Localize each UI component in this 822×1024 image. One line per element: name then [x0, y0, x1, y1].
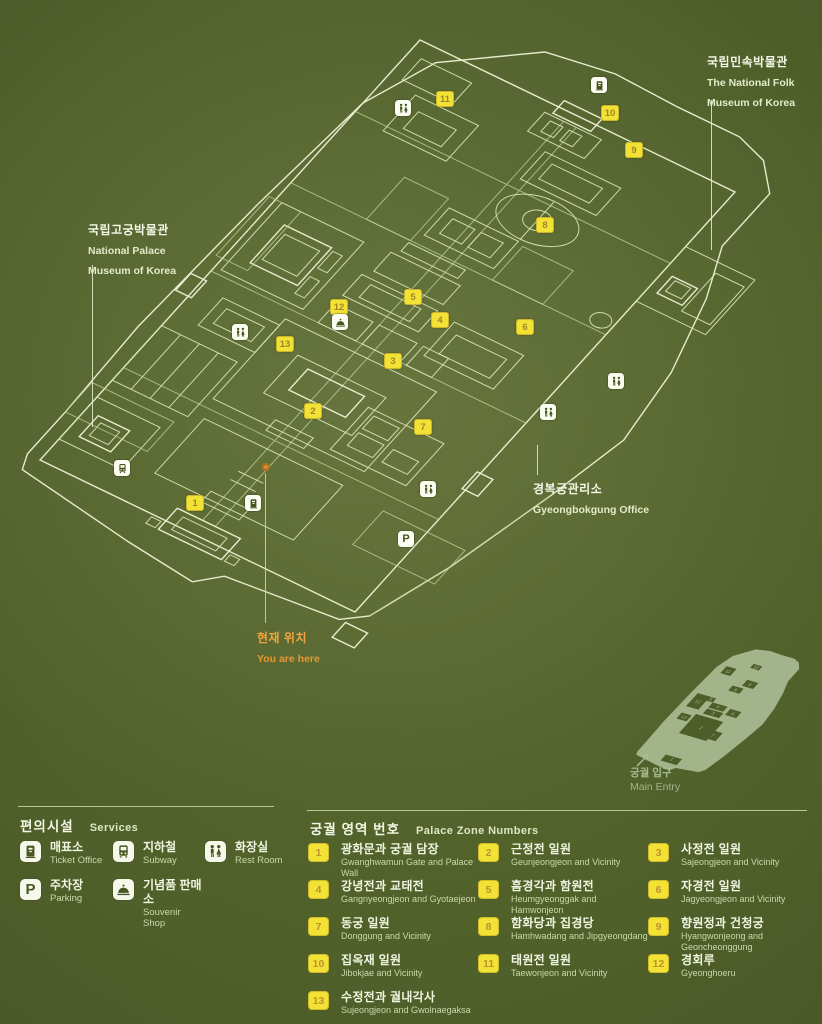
zone-label-ko: 집옥재 일원 — [341, 954, 422, 968]
restroom-icon — [423, 484, 434, 495]
map-marker-zone-1: 1 — [186, 495, 204, 511]
map-marker-number: 11 — [440, 94, 450, 105]
zone-item-10: 10집옥재 일원Jibokjae and Vicinity — [308, 954, 478, 991]
zone-label-ko: 경회루 — [681, 954, 736, 968]
zone-item-12: 12경회루Gyeonghoeru — [648, 954, 822, 991]
ticket-icon — [594, 80, 605, 91]
service-label-en: Subway — [143, 855, 177, 867]
service-item-ticket-office: 매표소Ticket Office — [20, 841, 113, 879]
folk-museum-leader-line — [711, 100, 712, 250]
zones-divider — [307, 810, 807, 811]
zone-item-4: 4강녕전과 교태전Gangnyeongjeon and Gyotaejeon — [308, 880, 478, 917]
restroom-icon — [611, 376, 622, 387]
zone-label-ko: 동궁 일원 — [341, 917, 431, 931]
restroom-icon — [235, 327, 246, 338]
map-marker-zone-4: 4 — [431, 312, 449, 328]
map-marker-zone-3: 3 — [384, 353, 402, 369]
zone-number-badge: 1 — [308, 843, 329, 862]
palace-museum-label-en2: Museum of Korea — [88, 265, 176, 277]
zone-label-ko: 강녕전과 교태전 — [341, 880, 476, 894]
folk-museum-label-en2: Museum of Korea — [707, 97, 795, 109]
zone-label-ko: 향원정과 건청궁 — [681, 917, 822, 931]
zone-label-ko: 태원전 일원 — [511, 954, 607, 968]
map-marker-zone-12: 12 — [330, 299, 348, 315]
zone-label-en: Jagyeongjeon and Vicinity — [681, 894, 785, 906]
zones-header: 궁궐 영역 번호 Palace Zone Numbers — [310, 818, 539, 838]
services-title-ko: 편의시설 — [20, 815, 74, 835]
zone-label-ko: 함화당과 집경당 — [511, 917, 648, 931]
zones-title-en: Palace Zone Numbers — [416, 825, 539, 837]
you-are-here-label-en: You are here — [257, 653, 320, 665]
map-marker-number: 13 — [280, 339, 291, 350]
zone-item-11: 11태원전 일원Taewonjeon and Vicinity — [478, 954, 648, 991]
zone-number-badge: 3 — [648, 843, 669, 862]
office-label-en: Gyeongbokgung Office — [533, 504, 649, 516]
zone-item-13: 13수정전과 궐내각사Sujeongjeon and Gwolnaegaksa — [308, 991, 478, 1024]
map-marker-zone-11: 11 — [436, 91, 454, 107]
zone-label-en: Gyeonghoeru — [681, 968, 736, 980]
map-badge-subway — [114, 460, 130, 476]
zone-number-badge: 11 — [478, 954, 499, 973]
zones-list: 1광화문과 궁궐 담장Gwanghwamun Gate and Palace W… — [308, 843, 822, 1024]
map-marker-zone-8: 8 — [536, 217, 554, 233]
souvenir-shop-icon — [335, 317, 346, 328]
palace-map-sign: 국립민속박물관 The National Folk Museum of Kore… — [0, 0, 822, 1024]
ticket-icon — [248, 498, 259, 509]
zone-item-7: 7동궁 일원Donggung and Vicinity — [308, 917, 478, 954]
map-marker-number: 4 — [437, 315, 442, 326]
map-badge-restroom — [232, 324, 248, 340]
folk-museum-label: 국립민속박물관 The National Folk Museum of Kore… — [707, 52, 795, 112]
zone-label-en: Gwanghwamun Gate and Palace Wall — [341, 857, 478, 880]
main-entry-label-ko: 궁궐 입구 — [630, 766, 680, 780]
zone-item-9: 9향원정과 건청궁Hyangwonjeong and Geoncheonggun… — [648, 917, 822, 954]
service-item-rest-room: 화장실Rest Room — [205, 841, 315, 879]
map-badge-restroom — [420, 481, 436, 497]
zone-label-en: Sujeongjeon and Gwolnaegaksa — [341, 1005, 471, 1017]
map-marker-number: 8 — [542, 220, 547, 231]
zone-number-badge: 10 — [308, 954, 329, 973]
zone-number-badge: 2 — [478, 843, 499, 862]
restroom-icon — [398, 103, 409, 114]
zone-number-badge: 12 — [648, 954, 669, 973]
map-marker-number: 6 — [522, 322, 527, 333]
office-label: 경복궁관리소 Gyeongbokgung Office — [533, 479, 649, 519]
restroom-icon — [205, 841, 226, 862]
services-divider — [18, 806, 274, 807]
services-list: 매표소Ticket Office 지하철Subway 화장실Rest Room … — [20, 841, 315, 917]
zone-label-en: Geunjeongjeon and Vicinity — [511, 857, 620, 869]
services-header: 편의시설 Services — [20, 815, 138, 835]
map-marker-zone-13: 13 — [276, 336, 294, 352]
map-badge-souvenir — [332, 314, 348, 330]
map-marker-number: 7 — [420, 422, 425, 433]
you-are-here-label: 현재 위치 You are here — [257, 628, 320, 668]
subway-icon — [113, 841, 134, 862]
palace-museum-leader-line — [92, 265, 93, 427]
map-marker-number: 1 — [192, 498, 197, 509]
folk-museum-label-ko: 국립민속박물관 — [707, 55, 788, 69]
map-marker-number: 12 — [334, 302, 345, 313]
map-marker-zone-10: 10 — [601, 105, 619, 121]
map-badge-ticket — [245, 495, 261, 511]
zone-label-ko: 흠경각과 함원전 — [511, 880, 648, 894]
zone-label-en: Taewonjeon and Vicinity — [511, 968, 607, 980]
palace-map-drawing — [0, 0, 822, 790]
map-marker-zone-6: 6 — [516, 319, 534, 335]
zone-item-5: 5흠경각과 함원전Heumgyeonggak and Hamwonjeon — [478, 880, 648, 917]
palace-museum-label-en1: National Palace — [88, 245, 166, 257]
map-badge-restroom — [395, 100, 411, 116]
zone-label-en: Hamhwadang and Jipgyeongdang — [511, 931, 648, 943]
zone-label-en: Sajeongjeon and Vicinity — [681, 857, 779, 869]
palace-museum-label-ko: 국립고궁박물관 — [88, 223, 169, 237]
service-item-subway: 지하철Subway — [113, 841, 205, 879]
palace-museum-label: 국립고궁박물관 National Palace Museum of Korea — [88, 220, 176, 280]
zone-item-3: 3사정전 일원Sajeongjeon and Vicinity — [648, 843, 822, 880]
service-label-en: Souvenir Shop — [143, 907, 205, 931]
zones-title-ko: 궁궐 영역 번호 — [310, 818, 400, 838]
map-badge-restroom — [540, 404, 556, 420]
zone-number-badge: 13 — [308, 991, 329, 1010]
service-item-souvenir-shop: 기념품 판매소Souvenir Shop — [113, 879, 205, 917]
office-leader-line — [537, 445, 538, 475]
map-marker-number: 10 — [605, 108, 616, 119]
map-marker-zone-7: 7 — [414, 419, 432, 435]
map-marker-number: 5 — [410, 292, 415, 303]
zone-number-badge: 6 — [648, 880, 669, 899]
subway-icon — [117, 463, 128, 474]
zone-label-ko: 수정전과 궐내각사 — [341, 991, 471, 1005]
service-label-en: Parking — [50, 893, 83, 905]
zone-number-badge: 9 — [648, 917, 669, 936]
map-marker-number: 3 — [390, 356, 395, 367]
zone-label-en: Jibokjae and Vicinity — [341, 968, 422, 980]
service-item-parking: P 주차장Parking — [20, 879, 113, 917]
service-label-ko: 화장실 — [235, 841, 283, 855]
main-entry-label: 궁궐 입구 Main Entry — [630, 766, 680, 794]
zone-item-8: 8함화당과 집경당Hamhwadang and Jipgyeongdang — [478, 917, 648, 954]
zone-label-en: Donggung and Vicinity — [341, 931, 431, 943]
zone-item-1: 1광화문과 궁궐 담장Gwanghwamun Gate and Palace W… — [308, 843, 478, 880]
zone-label-en: Gangnyeongjeon and Gyotaejeon — [341, 894, 476, 906]
services-title-en: Services — [90, 822, 138, 834]
parking-icon: P — [20, 879, 41, 900]
service-label-en: Rest Room — [235, 855, 283, 867]
zone-number-badge: 5 — [478, 880, 499, 899]
zone-label-en: Heumgyeonggak and Hamwonjeon — [511, 894, 648, 917]
you-are-here-leader-line — [265, 473, 266, 623]
map-badge-ticket — [591, 77, 607, 93]
map-marker-zone-2: 2 — [304, 403, 322, 419]
office-label-ko: 경복궁관리소 — [533, 482, 602, 496]
zone-number-badge: 7 — [308, 917, 329, 936]
folk-museum-label-en1: The National Folk — [707, 77, 795, 89]
zone-number-badge: 8 — [478, 917, 499, 936]
map-marker-number: 2 — [310, 406, 315, 417]
restroom-icon — [543, 407, 554, 418]
zone-label-ko: 자경전 일원 — [681, 880, 785, 894]
you-are-here-label-ko: 현재 위치 — [257, 631, 307, 645]
service-label-ko: 주차장 — [50, 879, 83, 893]
map-badge-restroom — [608, 373, 624, 389]
map-marker-number: 9 — [631, 145, 636, 156]
you-are-here-dot — [262, 463, 270, 471]
zone-label-ko: 근정전 일원 — [511, 843, 620, 857]
zone-label-ko: 광화문과 궁궐 담장 — [341, 843, 478, 857]
map-marker-zone-9: 9 — [625, 142, 643, 158]
souvenir-shop-icon — [113, 879, 134, 900]
service-label-ko: 매표소 — [50, 841, 102, 855]
zone-label-en: Hyangwonjeong and Geoncheonggung — [681, 931, 822, 954]
ticket-office-icon — [20, 841, 41, 862]
zone-item-2: 2근정전 일원Geunjeongjeon and Vicinity — [478, 843, 648, 880]
service-label-ko: 기념품 판매소 — [143, 879, 205, 907]
zone-number-badge: 4 — [308, 880, 329, 899]
main-entry-label-en: Main Entry — [630, 780, 680, 794]
zone-label-ko: 사정전 일원 — [681, 843, 779, 857]
map-badge-parking: P — [398, 531, 414, 547]
zone-item-6: 6자경전 일원Jagyeongjeon and Vicinity — [648, 880, 822, 917]
parking-icon: P — [402, 534, 409, 545]
service-label-ko: 지하철 — [143, 841, 177, 855]
service-label-en: Ticket Office — [50, 855, 102, 867]
map-marker-zone-5: 5 — [404, 289, 422, 305]
